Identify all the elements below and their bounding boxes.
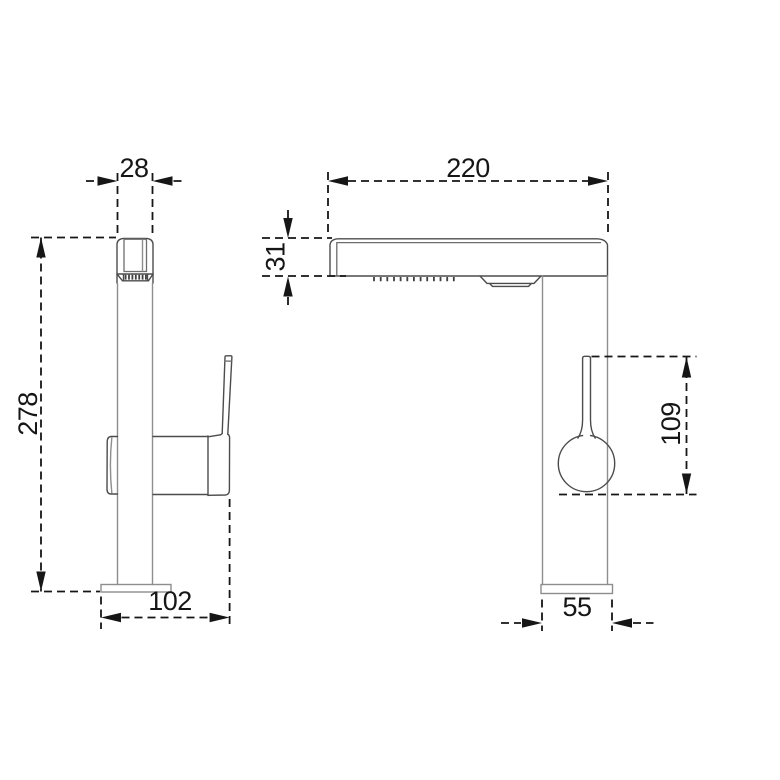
dim-handle-length: 109	[559, 357, 697, 495]
dimension-arrow-right-icon	[588, 176, 608, 185]
dimension-arrow-left-icon	[153, 176, 173, 185]
connector-line	[31, 238, 116, 592]
front-view	[101, 238, 232, 592]
valve-body-end-cap	[208, 434, 230, 495]
dimension-arrow-left-icon	[101, 613, 121, 622]
valve-body-right	[153, 436, 208, 496]
dimension-arrow-right-icon	[522, 618, 542, 627]
dimension-arrow-down-icon	[283, 218, 292, 238]
dim-base-width: 55	[501, 592, 654, 631]
dim-label-base-depth: 102	[148, 586, 192, 616]
dim-label-head-width: 28	[119, 153, 148, 183]
dimension-arrow-down-icon	[682, 474, 691, 495]
handle-knob	[558, 435, 614, 491]
handle-lever	[221, 356, 232, 435]
dimension-arrow-right-icon	[98, 176, 118, 185]
dimension-arrow-up-icon	[682, 357, 691, 378]
dim-label-overall-height: 278	[13, 392, 43, 436]
dimension-arrow-up-icon	[283, 277, 292, 297]
faucet-column	[118, 284, 153, 585]
dim-spout-height: 31	[261, 210, 347, 306]
dim-base-depth: 102	[101, 499, 230, 629]
dim-spout-reach: 220	[328, 153, 608, 236]
dim-label-handle-length: 109	[656, 402, 686, 446]
spout-arm-outline	[330, 239, 608, 276]
handle-stem	[578, 356, 595, 438]
spray-aerator-ticks	[374, 277, 454, 281]
dim-overall-height: 278	[13, 238, 116, 592]
dimension-arrow-up-icon	[36, 238, 45, 258]
dim-head-width: 28	[86, 153, 185, 234]
faucet-column-side	[543, 276, 608, 585]
dim-label-spout-reach: 220	[446, 153, 490, 183]
faucet-dimension-drawing: 28 220 31 278 109 102	[0, 0, 780, 780]
aerator-ticks	[126, 275, 146, 280]
technical-drawing-page: 28 220 31 278 109 102	[0, 0, 780, 780]
spray-outlet	[480, 276, 541, 286]
dimension-arrow-left-icon	[612, 618, 632, 627]
valve-body-left-shade	[110, 438, 111, 493]
valve-body-left	[107, 437, 118, 495]
dimension-arrow-down-icon	[36, 572, 45, 592]
dim-label-base-width: 55	[562, 592, 591, 622]
dimension-arrow-right-icon	[210, 613, 230, 622]
side-view	[330, 239, 615, 594]
dimension-arrow-left-icon	[328, 176, 348, 185]
dim-label-spout-height: 31	[261, 242, 291, 271]
handle-stem-mask	[583, 429, 590, 437]
